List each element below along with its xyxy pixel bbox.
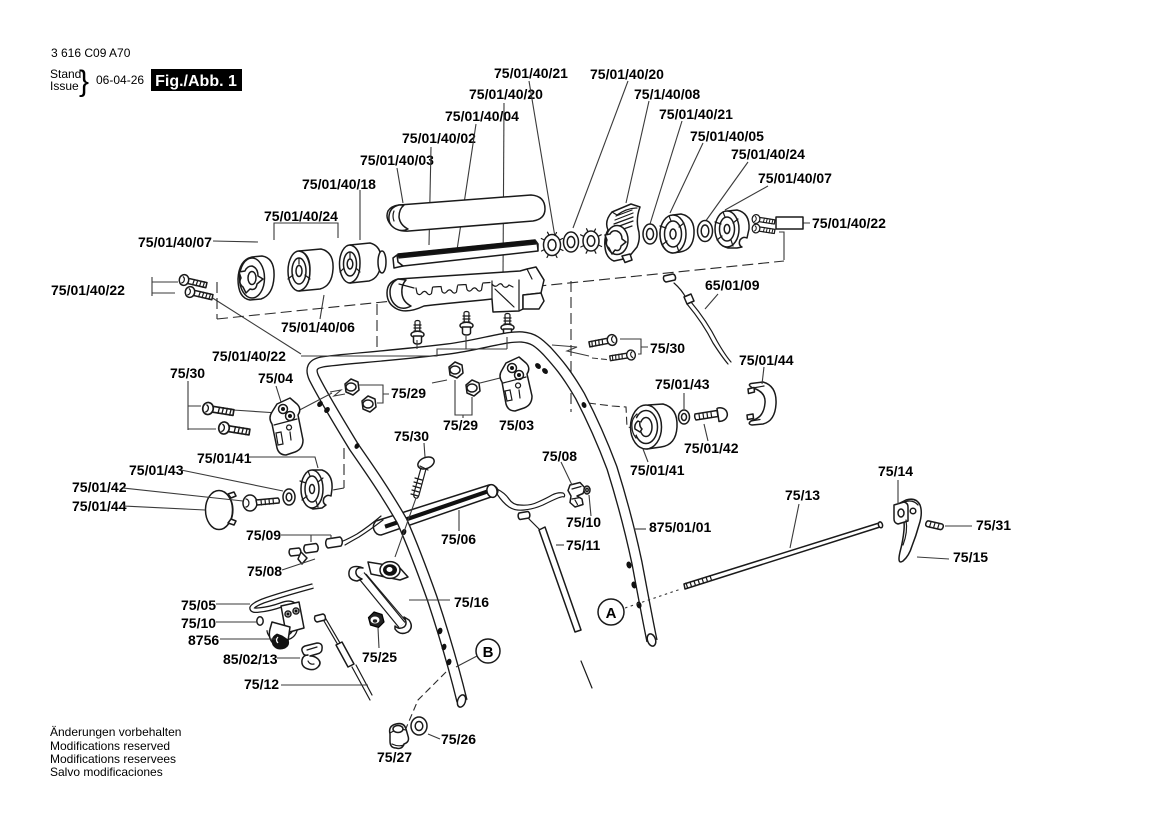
svg-text:75/01/43: 75/01/43 bbox=[129, 462, 184, 478]
svg-text:75/01/41: 75/01/41 bbox=[197, 450, 252, 466]
svg-text:85/02/13: 85/02/13 bbox=[223, 651, 278, 667]
svg-text:06-04-26: 06-04-26 bbox=[96, 73, 144, 87]
svg-text:75/30: 75/30 bbox=[650, 340, 685, 356]
svg-text:75/01/40/20: 75/01/40/20 bbox=[590, 66, 664, 82]
svg-text:Modifications reservees: Modifications reservees bbox=[50, 752, 176, 766]
svg-text:75/01/40/22: 75/01/40/22 bbox=[212, 348, 286, 364]
svg-text:3 616 C09 A70: 3 616 C09 A70 bbox=[51, 46, 131, 60]
svg-text:75/01/40/21: 75/01/40/21 bbox=[494, 65, 568, 81]
svg-text:A: A bbox=[606, 605, 617, 622]
svg-text:75/03: 75/03 bbox=[499, 417, 534, 433]
svg-text:75/01/40/05: 75/01/40/05 bbox=[690, 128, 764, 144]
svg-text:75/01/40/02: 75/01/40/02 bbox=[402, 130, 476, 146]
svg-text:75/01/40/24: 75/01/40/24 bbox=[264, 208, 338, 224]
svg-text:75/30: 75/30 bbox=[394, 428, 429, 444]
svg-text:75/25: 75/25 bbox=[362, 649, 397, 665]
svg-text:75/13: 75/13 bbox=[785, 487, 820, 503]
svg-text:75/01/44: 75/01/44 bbox=[72, 498, 127, 514]
svg-text:75/29: 75/29 bbox=[391, 385, 426, 401]
svg-text:75/01/43: 75/01/43 bbox=[655, 376, 710, 392]
svg-text:75/14: 75/14 bbox=[878, 463, 913, 479]
svg-text:75/15: 75/15 bbox=[953, 549, 988, 565]
svg-text:75/01/40/07: 75/01/40/07 bbox=[138, 234, 212, 250]
svg-text:}: } bbox=[79, 65, 89, 98]
svg-text:75/01/40/21: 75/01/40/21 bbox=[659, 106, 733, 122]
svg-text:75/11: 75/11 bbox=[566, 537, 600, 553]
svg-text:75/31: 75/31 bbox=[976, 517, 1011, 533]
svg-text:75/08: 75/08 bbox=[247, 563, 282, 579]
svg-text:Modifications reserved: Modifications reserved bbox=[50, 739, 170, 753]
svg-text:75/1/40/08: 75/1/40/08 bbox=[634, 86, 700, 102]
svg-text:75/01/42: 75/01/42 bbox=[684, 440, 739, 456]
svg-text:75/08: 75/08 bbox=[542, 448, 577, 464]
svg-text:75/10: 75/10 bbox=[181, 615, 216, 631]
svg-text:875/01/01: 875/01/01 bbox=[649, 519, 711, 535]
svg-text:Änderungen vorbehalten: Änderungen vorbehalten bbox=[50, 725, 181, 739]
svg-text:75/01/42: 75/01/42 bbox=[72, 479, 127, 495]
svg-text:Issue: Issue bbox=[50, 79, 79, 93]
svg-text:Fig./Abb. 1: Fig./Abb. 1 bbox=[155, 73, 237, 90]
svg-text:75/04: 75/04 bbox=[258, 370, 293, 386]
svg-text:75/16: 75/16 bbox=[454, 594, 489, 610]
svg-text:75/01/44: 75/01/44 bbox=[739, 352, 794, 368]
svg-text:75/01/40/24: 75/01/40/24 bbox=[731, 146, 805, 162]
svg-text:75/01/40/03: 75/01/40/03 bbox=[360, 152, 434, 168]
svg-text:75/06: 75/06 bbox=[441, 531, 476, 547]
svg-text:75/27: 75/27 bbox=[377, 749, 412, 765]
svg-text:75/01/40/18: 75/01/40/18 bbox=[302, 176, 376, 192]
svg-text:75/29: 75/29 bbox=[443, 417, 478, 433]
svg-text:75/05: 75/05 bbox=[181, 597, 216, 613]
svg-text:B: B bbox=[483, 644, 494, 661]
svg-text:75/12: 75/12 bbox=[244, 676, 279, 692]
svg-text:75/01/40/04: 75/01/40/04 bbox=[445, 108, 519, 124]
svg-text:75/01/40/22: 75/01/40/22 bbox=[812, 215, 886, 231]
svg-text:75/01/40/07: 75/01/40/07 bbox=[758, 170, 832, 186]
svg-text:75/01/40/22: 75/01/40/22 bbox=[51, 282, 125, 298]
svg-text:75/09: 75/09 bbox=[246, 527, 281, 543]
svg-text:75/26: 75/26 bbox=[441, 731, 476, 747]
svg-text:75/01/41: 75/01/41 bbox=[630, 462, 685, 478]
svg-text:75/30: 75/30 bbox=[170, 365, 205, 381]
svg-text:65/01/09: 65/01/09 bbox=[705, 277, 760, 293]
svg-text:75/10: 75/10 bbox=[566, 514, 601, 530]
svg-text:Salvo modificaciones: Salvo modificaciones bbox=[50, 765, 163, 779]
svg-text:75/01/40/06: 75/01/40/06 bbox=[281, 319, 355, 335]
svg-text:8756: 8756 bbox=[188, 632, 219, 648]
